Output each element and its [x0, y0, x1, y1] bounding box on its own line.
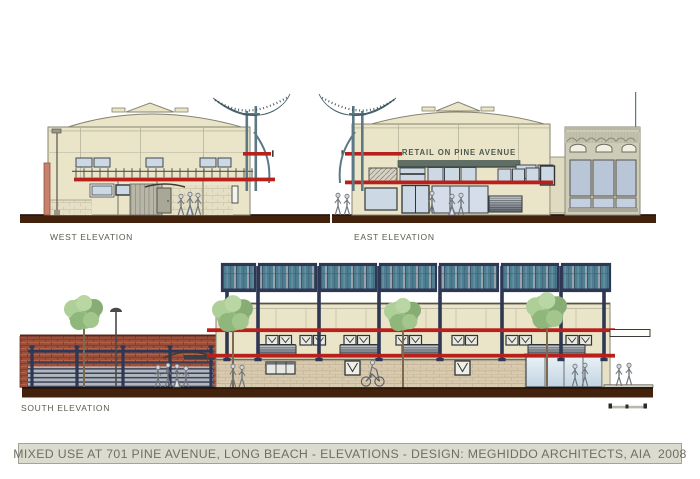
path-shape	[344, 206, 349, 215]
circle-shape	[231, 364, 235, 368]
entry-door	[157, 188, 171, 213]
rect-shape	[489, 196, 522, 212]
ground-edge	[22, 387, 653, 388]
clerestory-window	[410, 336, 422, 346]
rect-shape	[379, 263, 437, 266]
basement-window	[455, 361, 470, 375]
rect-shape	[365, 188, 397, 210]
red-bar	[243, 152, 271, 156]
rect-shape	[440, 264, 498, 291]
rect-shape	[266, 362, 295, 365]
rect-shape	[266, 336, 278, 346]
clerestory-window	[506, 336, 518, 346]
rect-shape	[502, 264, 558, 291]
clerestory-window	[580, 336, 592, 346]
edge-line	[635, 92, 636, 127]
storefront-base	[568, 208, 638, 212]
retail-sign: RETAIL ON PINE AVENUE	[397, 148, 521, 157]
circle-shape	[225, 295, 242, 312]
projecting-beam	[610, 330, 650, 337]
red-bar	[245, 178, 275, 182]
sign-canopy	[398, 161, 520, 167]
storefront-pane	[616, 160, 636, 196]
rect-shape	[520, 336, 532, 346]
rect-shape	[221, 263, 256, 266]
rect-shape	[258, 289, 317, 292]
circle-shape	[617, 364, 621, 368]
circle-shape	[196, 193, 200, 197]
title-bar: MIXED USE AT 701 PINE AVENUE, LONG BEACH…	[18, 443, 682, 464]
rect-shape	[626, 405, 629, 409]
person	[616, 364, 622, 386]
storefront-pane	[593, 160, 614, 196]
rect-shape	[379, 289, 437, 292]
circle-shape	[459, 193, 463, 197]
fence-post	[121, 347, 124, 387]
rect-shape	[565, 127, 640, 130]
arched-window	[622, 144, 636, 152]
rect-shape	[526, 168, 539, 181]
circle-shape	[175, 364, 179, 368]
ground	[22, 389, 653, 398]
door-knob	[167, 200, 169, 202]
rect-shape	[76, 158, 92, 167]
person	[626, 363, 632, 385]
cupola	[436, 102, 480, 111]
rect-shape	[320, 264, 376, 291]
clerestory-window	[358, 336, 370, 346]
rect-shape	[445, 168, 460, 182]
transom-pane	[593, 198, 614, 208]
red-bar-lower	[345, 181, 553, 185]
rect-shape	[501, 289, 559, 292]
path-shape	[335, 206, 340, 215]
circle-shape	[188, 192, 192, 196]
circle-shape	[583, 363, 587, 367]
rect-shape	[561, 263, 611, 266]
rect-shape	[221, 289, 256, 292]
rect-shape	[439, 263, 499, 266]
pink-pilaster	[44, 163, 50, 215]
rect-shape	[200, 158, 216, 167]
circle-shape	[83, 312, 99, 328]
circle-shape	[345, 194, 349, 198]
rect-shape	[506, 336, 518, 346]
circle-shape	[156, 365, 160, 369]
rect-shape	[319, 289, 377, 292]
rect-shape	[611, 406, 647, 409]
rect-shape	[146, 158, 163, 167]
circle-shape	[402, 314, 417, 329]
ground	[20, 216, 330, 224]
post-foot	[557, 358, 564, 361]
rect-shape	[580, 336, 592, 346]
clerestory-window	[280, 336, 292, 346]
circle-shape	[76, 295, 92, 311]
clerestory-window	[520, 336, 532, 346]
clerestory-panel-group	[379, 263, 437, 291]
person	[335, 193, 341, 215]
clerestory-window	[300, 336, 312, 346]
circle-shape	[573, 364, 577, 368]
bar-marker	[272, 150, 274, 157]
clerestory-panel-group	[258, 263, 317, 291]
cupola-tab	[422, 107, 435, 111]
rect-shape	[352, 106, 355, 191]
corner-storefront	[524, 354, 610, 388]
clerestory-window	[266, 336, 278, 346]
cupola-tab	[175, 108, 188, 112]
post-foot	[436, 358, 443, 361]
parapet-joint	[352, 128, 550, 129]
fence-post-cap	[74, 346, 79, 348]
fence-post	[30, 347, 33, 387]
rect-shape	[428, 168, 443, 182]
rect-shape	[400, 175, 425, 182]
rect-shape	[361, 111, 364, 191]
east-elevation-label: EAST ELEVATION	[354, 232, 435, 242]
cupola-tab	[481, 107, 494, 111]
south-elevation	[20, 263, 653, 409]
rect-shape	[609, 404, 613, 409]
rect-shape	[461, 168, 476, 182]
rect-shape	[259, 264, 316, 291]
rect-shape	[380, 264, 436, 291]
clerestory-window	[566, 336, 578, 346]
fence-rail	[28, 362, 213, 363]
circle-shape	[184, 366, 188, 370]
post-foot	[498, 358, 505, 361]
post-foot	[375, 358, 382, 361]
path-shape	[110, 308, 122, 312]
circle-shape	[627, 363, 631, 367]
circle-shape	[546, 310, 563, 327]
rect-shape	[344, 336, 356, 346]
circle-shape	[179, 194, 183, 198]
rect-shape	[455, 361, 470, 375]
circle-shape	[539, 292, 556, 309]
east-elevation	[319, 92, 656, 223]
south-elevation-label: SOUTH ELEVATION	[21, 403, 110, 413]
rect-shape	[258, 263, 317, 266]
cupola-tab	[112, 108, 125, 112]
clerestory-panels	[221, 263, 611, 291]
rect-shape	[513, 169, 525, 181]
rect-shape	[498, 169, 511, 181]
parapet-joint	[48, 131, 250, 132]
red-rail-lower	[207, 354, 615, 358]
post-foot	[254, 358, 261, 361]
rect-shape	[566, 336, 578, 346]
clerestory-window	[466, 336, 478, 346]
rect-shape	[300, 336, 312, 346]
clerestory-window	[452, 336, 464, 346]
clerestory-panel-group	[439, 263, 499, 291]
facade-joint	[48, 152, 250, 153]
arched-window	[570, 144, 586, 152]
west-elevation-label: WEST ELEVATION	[50, 232, 133, 242]
rect-shape	[452, 336, 464, 346]
rect-shape	[115, 312, 117, 387]
rect-shape	[52, 129, 61, 133]
hatch-panel	[369, 168, 397, 181]
fence-post-cap	[29, 346, 34, 348]
path-shape	[626, 376, 631, 385]
rect-shape	[222, 264, 255, 291]
scale-bar	[609, 404, 648, 409]
rect-shape	[345, 361, 360, 375]
ground	[332, 216, 656, 224]
rect-shape	[54, 210, 60, 215]
clerestory-panel-group	[561, 263, 611, 291]
slim-window	[232, 186, 238, 203]
post-foot	[223, 358, 230, 361]
rect-shape	[116, 185, 130, 195]
basement-window	[345, 361, 360, 375]
rect-shape	[410, 336, 422, 346]
rect-shape	[358, 336, 370, 346]
circle-shape	[232, 313, 249, 330]
fence-post	[75, 347, 78, 387]
rect-shape	[501, 263, 559, 266]
transom-pane	[616, 198, 636, 208]
rect-shape	[561, 289, 611, 292]
adjacent-building	[565, 127, 640, 215]
clerestory-window	[344, 336, 356, 346]
crescent	[319, 94, 396, 116]
rect-shape	[644, 404, 648, 409]
circle-shape	[430, 191, 434, 195]
rect-shape	[439, 289, 499, 292]
upper-windows	[76, 158, 231, 167]
circle-shape	[336, 193, 340, 197]
dome-roof	[368, 112, 548, 125]
rect-shape	[92, 186, 112, 195]
rect-shape	[218, 158, 231, 167]
circle-shape	[240, 365, 244, 369]
clerestory-panel-group	[221, 263, 256, 291]
circle-shape	[166, 363, 170, 367]
rect-shape	[94, 158, 110, 167]
fence-post-cap	[120, 346, 125, 348]
circle-shape	[395, 298, 410, 313]
rect-shape	[319, 263, 377, 266]
west-elevation	[20, 94, 330, 223]
circle-shape	[370, 360, 374, 364]
clerestory-panel-group	[319, 263, 377, 291]
circle-shape	[450, 194, 454, 198]
rect-shape	[562, 264, 610, 291]
cupola	[126, 103, 174, 112]
person	[344, 194, 350, 215]
post-foot	[600, 358, 607, 361]
clerestory-panel-group	[501, 263, 559, 291]
post-foot	[315, 358, 322, 361]
fence-post	[209, 347, 212, 387]
rect-shape	[80, 128, 81, 180]
rect-shape	[400, 168, 425, 174]
rect-shape	[466, 336, 478, 346]
dome-roof	[65, 114, 245, 128]
crescent	[213, 94, 290, 116]
storefront-pane	[570, 160, 591, 196]
arched-window	[596, 144, 612, 152]
red-canopy	[74, 178, 253, 182]
transom-pane	[570, 198, 591, 208]
sidewalk-slab	[604, 385, 653, 388]
title-text: MIXED USE AT 701 PINE AVENUE, LONG BEACH…	[13, 447, 686, 461]
fence-post-cap	[167, 346, 172, 348]
fence-post-cap	[208, 346, 213, 348]
drawing-sheet: WEST ELEVATION EAST ELEVATION SOUTH ELEV…	[0, 0, 700, 479]
rect-shape	[280, 336, 292, 346]
lower-windows	[90, 184, 130, 197]
